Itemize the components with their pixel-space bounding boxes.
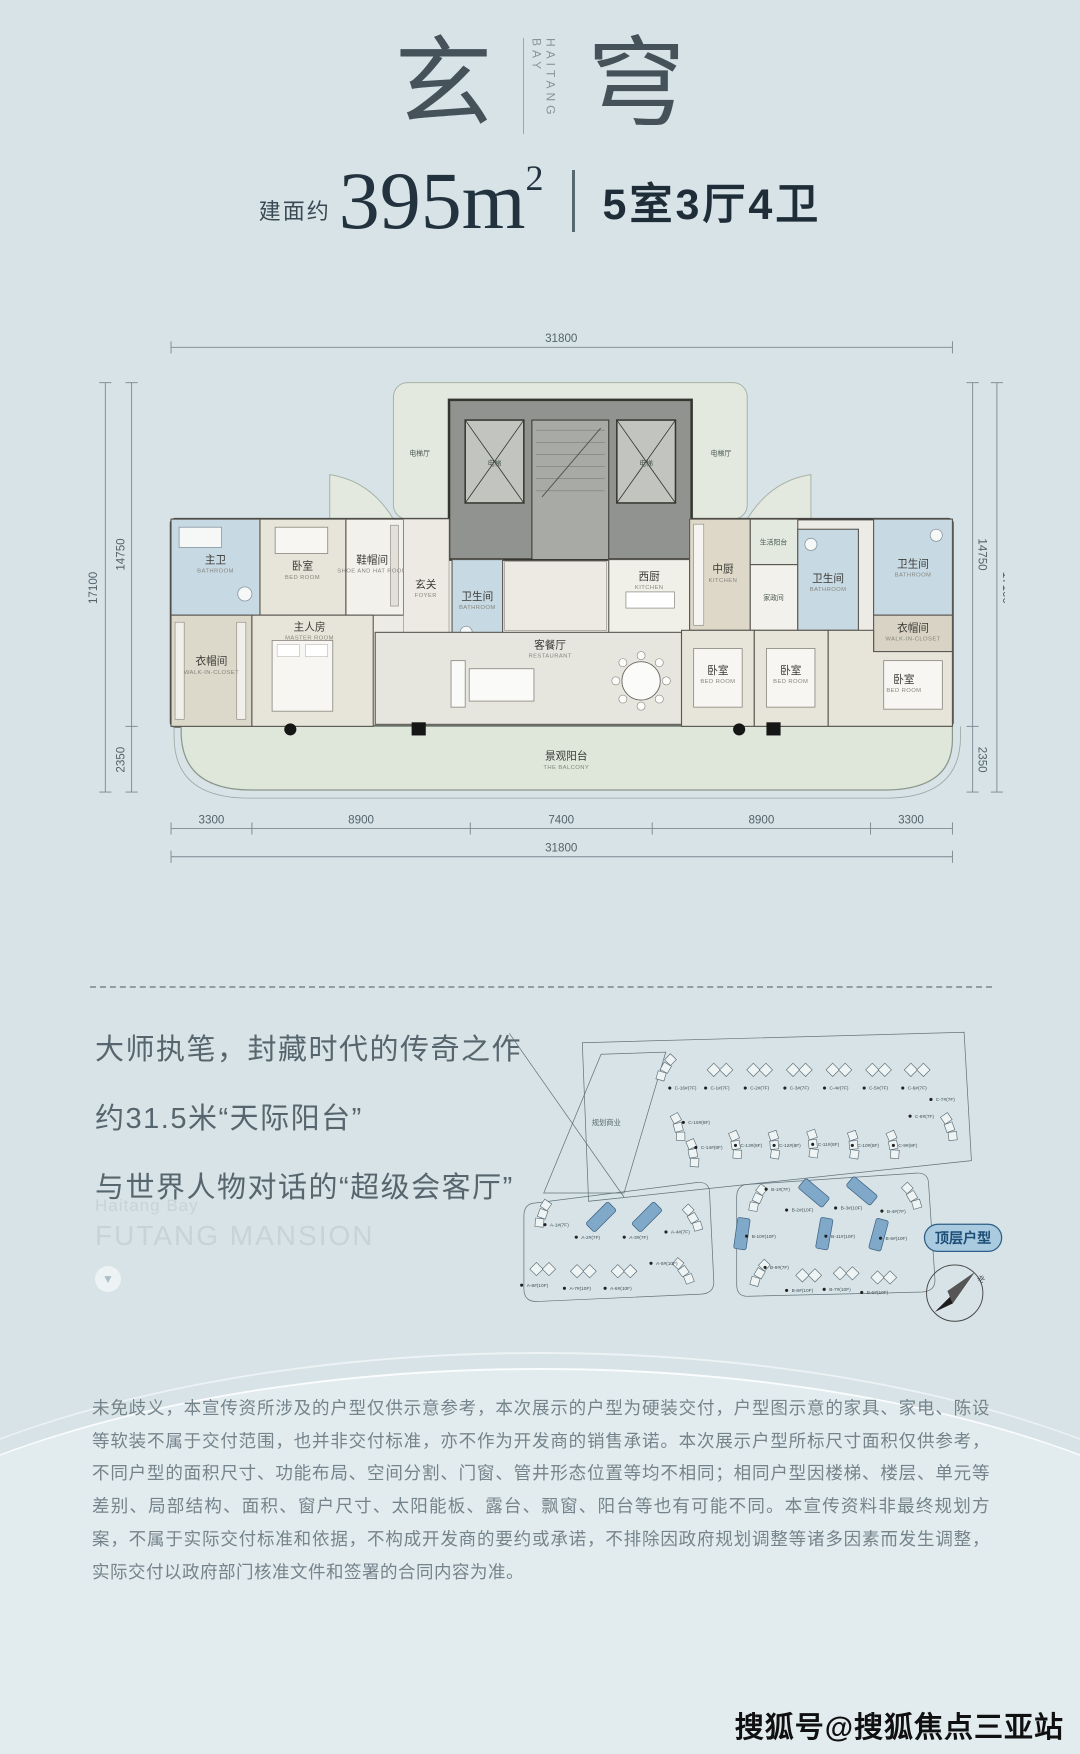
- svg-text:B-6#(10F): B-6#(10F): [867, 1290, 889, 1296]
- svg-text:C-6#(7F): C-6#(7F): [908, 1086, 928, 1092]
- svg-text:C-14#(8F): C-14#(8F): [701, 1145, 723, 1151]
- svg-text:BATHROOM: BATHROOM: [895, 573, 932, 579]
- site-building: A-2#(7F): [575, 1201, 617, 1240]
- page-title-char-left: 玄: [394, 30, 492, 138]
- spec-divider: [572, 170, 575, 232]
- site-building: C-1#(7F): [704, 1063, 733, 1091]
- siteplan-svg: 规划商业 C-16#(7F)C-1#(7F)C-2#(7F)C-3#(7F)C-…: [478, 1028, 1010, 1336]
- svg-text:C-16#(7F): C-16#(7F): [675, 1086, 697, 1092]
- site-building: B-9#(7F): [750, 1259, 790, 1286]
- site-building: C-10#(8F): [847, 1130, 879, 1159]
- site-building: C-3#(7F): [783, 1063, 812, 1091]
- room-master-bath: 主卫 BATHROOM: [171, 519, 260, 615]
- page-title-char-right: 穹: [588, 30, 686, 138]
- svg-text:西厨: 西厨: [639, 571, 661, 583]
- site-building: C-7#(7F): [929, 1097, 955, 1103]
- compass-north-label: 北: [975, 1273, 987, 1285]
- poster-page: 玄 HAITANG BAY 穹 建面约 395m2 5室3厅4卫 31800 1…: [0, 0, 1080, 1754]
- room-living-dining: 客餐厅 RESTAURANT: [375, 632, 681, 724]
- svg-text:C-15#(8F): C-15#(8F): [688, 1120, 710, 1126]
- svg-text:3300: 3300: [898, 813, 924, 826]
- svg-text:BATHROOM: BATHROOM: [810, 587, 847, 593]
- site-building: A-6#(10F): [604, 1265, 637, 1292]
- svg-text:8900: 8900: [348, 813, 374, 826]
- site-building: A-4#(7F): [664, 1204, 702, 1236]
- svg-text:C-7#(7F): C-7#(7F): [936, 1097, 956, 1103]
- header: 玄 HAITANG BAY 穹: [0, 30, 1080, 138]
- svg-text:顶层户型: 顶层户型: [935, 1230, 991, 1246]
- svg-text:7400: 7400: [548, 813, 574, 826]
- svg-text:KITCHEN: KITCHEN: [709, 578, 738, 584]
- svg-text:B-1#(7F): B-1#(7F): [771, 1187, 790, 1193]
- site-building: B-1#(7F): [749, 1184, 791, 1212]
- room-bathroom-right-1: 卫生间 BATHROOM: [798, 529, 859, 630]
- site-building: A-1#(7F): [535, 1199, 569, 1228]
- svg-text:卫生间: 卫生间: [461, 590, 493, 603]
- siteplan-roads: [509, 1032, 971, 1301]
- svg-text:C-5#(7F): C-5#(7F): [869, 1086, 889, 1092]
- svg-text:主卫: 主卫: [205, 555, 227, 567]
- site-building: C-16#(7F): [656, 1054, 697, 1092]
- elevator-core: 电梯 电梯 电梯厅 电梯厅: [409, 400, 731, 560]
- top-floor-badge: 顶层户型: [924, 1224, 1001, 1251]
- svg-text:3300: 3300: [199, 813, 225, 826]
- site-building: B-3#(10F): [834, 1176, 878, 1212]
- svg-text:C-12#(8F): C-12#(8F): [779, 1143, 801, 1149]
- svg-text:B-11#(10F): B-11#(10F): [831, 1234, 855, 1240]
- svg-text:BATHROOM: BATHROOM: [459, 605, 496, 611]
- svg-text:BATHROOM: BATHROOM: [197, 569, 234, 575]
- marketing-line-2: 约31.5米“天际阳台”: [95, 1095, 522, 1137]
- svg-text:家政间: 家政间: [763, 593, 784, 602]
- svg-text:C-2#(7F): C-2#(7F): [750, 1086, 770, 1092]
- svg-text:THE BALCONY: THE BALCONY: [543, 765, 589, 771]
- spec-row: 建面约 395m2 5室3厅4卫: [0, 160, 1080, 242]
- floorplan-svg: 31800 17100 14750 2350 14750 2350 17: [75, 322, 1005, 878]
- svg-text:电梯: 电梯: [639, 459, 653, 468]
- area-superscript: 2: [526, 158, 544, 198]
- svg-text:B-8#(10F): B-8#(10F): [792, 1288, 814, 1294]
- svg-text:电梯: 电梯: [488, 459, 502, 468]
- site-building: C-9#(8F): [886, 1130, 918, 1158]
- svg-text:17100: 17100: [87, 572, 100, 604]
- site-building: B-8#(10F): [785, 1269, 822, 1294]
- site-building: A-3#(7F): [623, 1201, 663, 1240]
- svg-text:MASTER ROOM: MASTER ROOM: [285, 635, 334, 641]
- room-closet-right: 衣帽间 WALK-IN-CLOSET: [874, 615, 953, 651]
- svg-text:衣帽间: 衣帽间: [897, 621, 929, 634]
- svg-text:A-7#(10F): A-7#(10F): [569, 1286, 591, 1292]
- svg-text:C-13#(8F): C-13#(8F): [740, 1143, 762, 1149]
- svg-text:中厨: 中厨: [712, 563, 734, 576]
- site-building: A-5#(10F): [649, 1258, 694, 1285]
- svg-text:A-6#(10F): A-6#(10F): [610, 1286, 632, 1292]
- site-building: B-7#(10F): [823, 1267, 860, 1293]
- svg-text:14750: 14750: [976, 538, 989, 570]
- layout-text: 5室3厅4卫: [603, 170, 822, 232]
- svg-text:电梯厅: 电梯厅: [409, 448, 430, 457]
- svg-text:卧室: 卧室: [893, 673, 915, 686]
- brand-watermark: Haitang Bay FUTANG MANSION ▼: [95, 1196, 374, 1292]
- svg-text:A-3#(7F): A-3#(7F): [629, 1235, 648, 1241]
- site-building: C-13#(8F): [729, 1130, 763, 1158]
- room-master-room: 主人房 MASTER ROOM: [252, 615, 373, 726]
- svg-text:14750: 14750: [115, 538, 128, 570]
- dashed-divider: [90, 986, 992, 988]
- svg-text:生活阳台: 生活阳台: [760, 537, 788, 546]
- room-view-balcony: 景观阳台 THE BALCONY: [174, 726, 960, 798]
- svg-text:C-1#(7F): C-1#(7F): [710, 1086, 730, 1092]
- svg-text:BED ROOM: BED ROOM: [700, 679, 735, 685]
- site-building: C-5#(7F): [863, 1063, 892, 1091]
- site-building: B-5#(10F): [868, 1218, 907, 1251]
- svg-text:C-11#(8F): C-11#(8F): [818, 1142, 840, 1148]
- svg-text:KITCHEN: KITCHEN: [635, 585, 664, 591]
- svg-text:衣帽间: 衣帽间: [196, 655, 228, 668]
- site-building: B-11#(10F): [815, 1217, 855, 1250]
- svg-text:A-2#(7F): A-2#(7F): [581, 1235, 600, 1241]
- svg-text:C-8#(7F): C-8#(7F): [915, 1114, 935, 1120]
- svg-text:WALK-IN-CLOSET: WALK-IN-CLOSET: [885, 636, 940, 642]
- svg-text:B-10#(10F): B-10#(10F): [752, 1234, 777, 1240]
- svg-text:玄关: 玄关: [415, 578, 437, 591]
- brand-watermark-line-1: Haitang Bay: [95, 1196, 374, 1216]
- svg-text:B-7#(10F): B-7#(10F): [829, 1287, 851, 1293]
- room-bedroom-3: 卧室 BED ROOM: [754, 630, 828, 726]
- room-bathroom-right-2: 卫生间 BATHROOM: [874, 519, 953, 615]
- svg-text:C-9#(8F): C-9#(8F): [898, 1143, 918, 1149]
- dimension-left: 17100 14750 2350: [87, 383, 137, 792]
- svg-text:SHOE AND HAT ROOM: SHOE AND HAT ROOM: [337, 569, 407, 575]
- svg-text:BED ROOM: BED ROOM: [886, 688, 921, 694]
- svg-text:BED ROOM: BED ROOM: [773, 679, 808, 685]
- svg-text:2350: 2350: [976, 747, 989, 773]
- sohu-watermark: 搜狐号@搜狐焦点三亚站: [735, 1704, 1064, 1746]
- svg-text:WALK-IN-CLOSET: WALK-IN-CLOSET: [184, 670, 239, 676]
- site-building: A-8#(10F): [520, 1262, 555, 1288]
- svg-text:BED ROOM: BED ROOM: [285, 575, 320, 581]
- compass-icon: 北: [927, 1265, 988, 1321]
- room-chinese-kitchen: 中厨 KITCHEN: [690, 519, 751, 630]
- svg-text:B-3#(10F): B-3#(10F): [841, 1206, 863, 1212]
- svg-text:C-3#(7F): C-3#(7F): [790, 1086, 810, 1092]
- disclaimer-text: 未免歧义，本宣传资所涉及的户型仅供示意参考，本次展示的户型为硬装交付，户型图示意…: [92, 1392, 990, 1588]
- commercial-zone-label: 规划商业: [592, 1118, 621, 1127]
- svg-text:RESTAURANT: RESTAURANT: [528, 654, 571, 660]
- brand-watermark-line-2: FUTANG MANSION: [95, 1220, 374, 1252]
- svg-text:B-9#(7F): B-9#(7F): [770, 1265, 789, 1271]
- svg-text:主人房: 主人房: [294, 620, 326, 633]
- site-building: C-8#(7F): [909, 1113, 958, 1141]
- svg-text:景观阳台: 景观阳台: [545, 750, 587, 763]
- site-building: C-6#(7F): [901, 1063, 930, 1091]
- room-service-balcony: 生活阳台: [750, 519, 798, 564]
- svg-text:31800: 31800: [545, 842, 577, 855]
- site-building: B-6#(10F): [860, 1271, 897, 1296]
- dimension-right: 14750 2350 17100: [967, 383, 1005, 792]
- svg-text:A-4#(7F): A-4#(7F): [671, 1230, 690, 1236]
- svg-text:C-10#(8F): C-10#(8F): [857, 1143, 879, 1149]
- site-building: B-2#(10F): [785, 1178, 830, 1214]
- page-subtitle-vertical: HAITANG BAY: [523, 38, 558, 134]
- dimension-bottom: 3300 8900 7400 8900 3300 31800: [171, 813, 952, 862]
- site-building: B-4#(7F): [880, 1182, 921, 1215]
- room-bedroom-1: 卧室 BED ROOM: [260, 519, 346, 615]
- site-building: C-12#(8F): [768, 1130, 801, 1159]
- svg-text:B-4#(7F): B-4#(7F): [887, 1209, 906, 1215]
- site-building: C-4#(7F): [823, 1063, 852, 1091]
- svg-text:A-5#(10F): A-5#(10F): [656, 1261, 678, 1267]
- site-building: A-7#(10F): [563, 1265, 596, 1292]
- svg-text:电梯厅: 电梯厅: [711, 448, 732, 457]
- svg-text:客餐厅: 客餐厅: [534, 639, 566, 652]
- svg-text:17100: 17100: [1000, 572, 1005, 604]
- svg-text:卫生间: 卫生间: [812, 572, 844, 585]
- room-housekeeping: 家政间: [750, 565, 798, 631]
- site-building: C-15#(8F): [670, 1112, 710, 1140]
- site-building: B-10#(10F): [734, 1217, 777, 1250]
- room-closet-left: 衣帽间 WALK-IN-CLOSET: [171, 615, 252, 726]
- svg-text:8900: 8900: [748, 813, 774, 826]
- svg-text:FOYER: FOYER: [415, 593, 437, 599]
- room-bedroom-2: 卧室 BED ROOM: [682, 630, 755, 726]
- area-prefix: 建面约: [259, 194, 331, 242]
- svg-text:卧室: 卧室: [292, 560, 314, 573]
- hallway: [505, 562, 607, 631]
- dimension-top: 31800: [171, 332, 952, 353]
- site-building: C-11#(8F): [807, 1129, 840, 1158]
- svg-text:鞋帽间: 鞋帽间: [356, 554, 388, 567]
- room-shoe-hat: 鞋帽间 SHOE AND HAT ROOM: [337, 519, 407, 615]
- site-building: C-2#(7F): [744, 1063, 773, 1091]
- svg-text:31800: 31800: [545, 332, 577, 345]
- svg-text:卧室: 卧室: [707, 664, 729, 677]
- svg-text:C-4#(7F): C-4#(7F): [829, 1086, 849, 1092]
- svg-text:A-8#(10F): A-8#(10F): [527, 1283, 549, 1289]
- svg-text:2350: 2350: [115, 747, 128, 773]
- svg-text:B-2#(10F): B-2#(10F): [792, 1208, 814, 1214]
- brand-logo-icon: ▼: [95, 1266, 121, 1292]
- area-value: 395m2: [339, 160, 544, 242]
- svg-text:A-1#(7F): A-1#(7F): [550, 1222, 569, 1228]
- svg-text:卧室: 卧室: [780, 664, 802, 677]
- marketing-line-1: 大师执笔，封藏时代的传奇之作: [95, 1026, 522, 1068]
- svg-text:卫生间: 卫生间: [897, 558, 929, 571]
- svg-text:B-5#(10F): B-5#(10F): [886, 1236, 908, 1242]
- site-building: C-14#(8F): [686, 1139, 723, 1167]
